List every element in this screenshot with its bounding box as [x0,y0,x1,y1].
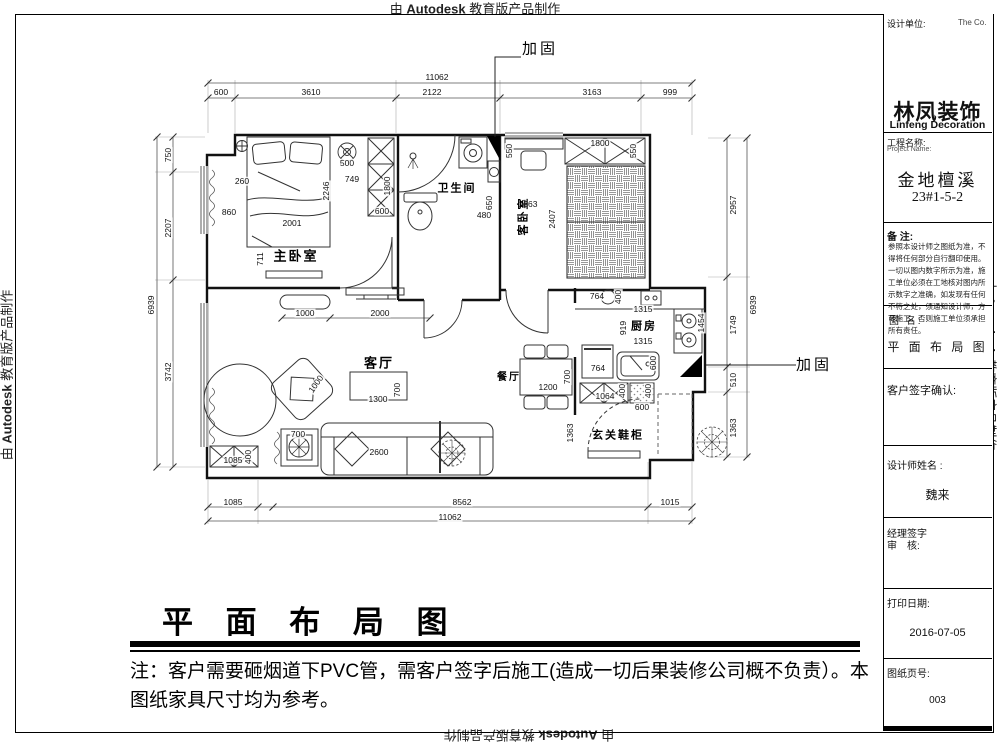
dimension-label: 700 [290,430,306,439]
dimension-label: 6939 [749,295,758,316]
dimension-label: 749 [344,175,360,184]
room-label: 卫生间 [438,184,477,195]
dimension-label: 510 [729,372,738,388]
dimension-label: 1315 [633,305,654,314]
reinforce-callout: 加固 [522,42,558,57]
dimension-label: 2207 [164,218,173,239]
dimension-label: 750 [164,147,173,163]
dimension-label: 11062 [424,73,449,82]
dimension-label: 2246 [322,181,331,202]
dimension-label: 1085 [223,456,244,465]
dimension-label: 400 [244,449,253,465]
dimension-label: 1315 [633,337,654,346]
dimension-label: 400 [644,383,653,399]
dimension-label: 3742 [164,362,173,383]
dimension-label: 1000 [295,309,316,318]
dimension-label: 1064 [595,392,616,401]
dimension-label: 600 [649,355,658,371]
dimension-label: 999 [662,88,678,97]
dimension-label: 2001 [282,219,303,228]
dimension-label: 1749 [729,315,738,336]
dimension-label: 400 [618,383,627,399]
dimension-label: 1000 [307,373,326,395]
dimension-label: 1454 [697,313,706,334]
dimension-label: 1800 [383,176,392,197]
dimension-label: 700 [393,382,402,398]
dimension-label: 1300 [368,395,389,404]
room-label: 客厅 [364,357,394,370]
dimension-label: 1363 [729,418,738,439]
room-label: 餐厅 [497,373,521,383]
plan-labels-layer: 1106260036102122316399910858562101511062… [0,0,1000,750]
dimension-label: 11062 [437,513,462,522]
room-label: 客卧室 [519,197,530,236]
dimension-label: 3610 [301,88,322,97]
dimension-label: 860 [221,208,237,217]
dimension-label: 600 [634,403,650,412]
dimension-label: 650 [485,195,494,211]
dimension-label: 2000 [370,309,391,318]
dimension-label: 2600 [369,448,390,457]
room-label: 玄关鞋柜 [592,431,644,442]
dimension-label: 1200 [538,383,559,392]
dimension-label: 711 [256,251,265,267]
dimension-label: 400 [614,289,623,305]
dimension-label: 764 [590,364,606,373]
dimension-label: 550 [629,143,638,159]
dimension-label: 6939 [147,295,156,316]
dimension-label: 1800 [590,139,611,148]
dimension-label: 600 [213,88,229,97]
dimension-label: 260 [234,177,250,186]
room-label: 厨房 [631,322,657,333]
dimension-label: 480 [476,211,492,220]
dimension-label: 2407 [548,209,557,230]
dimension-label: 1363 [566,423,575,444]
dimension-label: 700 [563,369,572,385]
reinforce-callout: 加固 [796,358,832,373]
dimension-label: 2122 [422,88,443,97]
room-label: 主卧室 [273,250,318,263]
dimension-label: 2957 [729,195,738,216]
dimension-label: 919 [619,320,628,336]
dimension-label: 600 [374,207,390,216]
dimension-label: 1015 [660,498,681,507]
dimension-label: 3163 [582,88,603,97]
cad-floor-plan-sheet: { "watermark": { "prefix": "由 ", "brand"… [0,0,1000,750]
dimension-label: 1085 [223,498,244,507]
dimension-label: 500 [339,159,355,168]
dimension-label: 764 [589,292,605,301]
dimension-label: 8562 [452,498,473,507]
dimension-label: 550 [505,143,514,159]
